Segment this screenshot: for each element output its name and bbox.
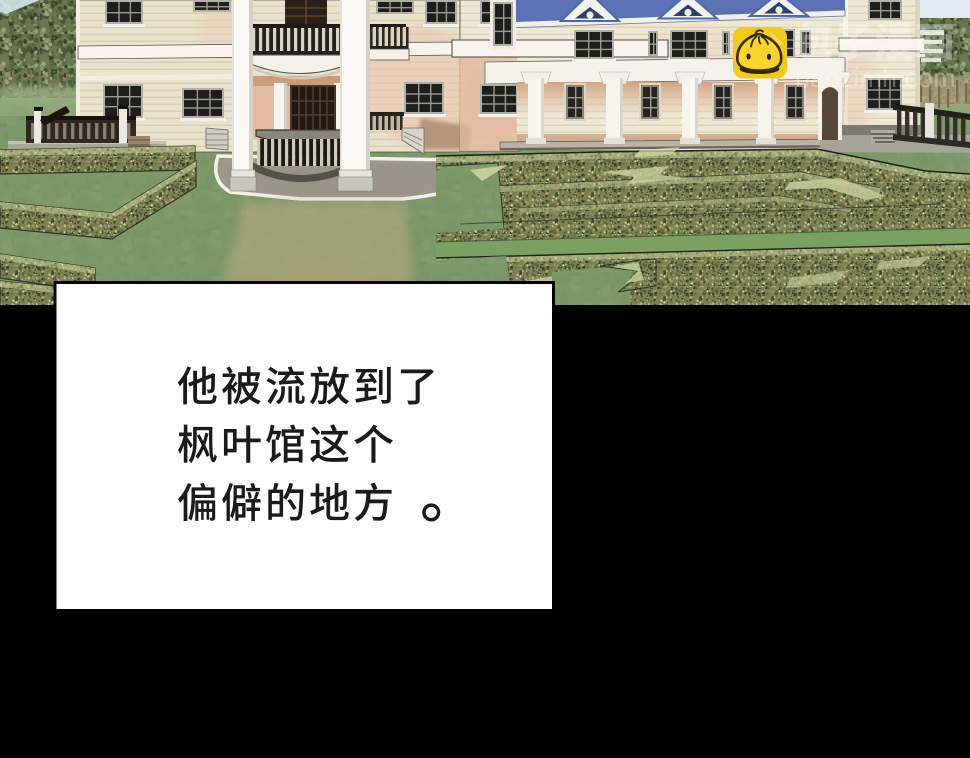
svg-text:baozimh.com: baozimh.com <box>795 63 956 93</box>
